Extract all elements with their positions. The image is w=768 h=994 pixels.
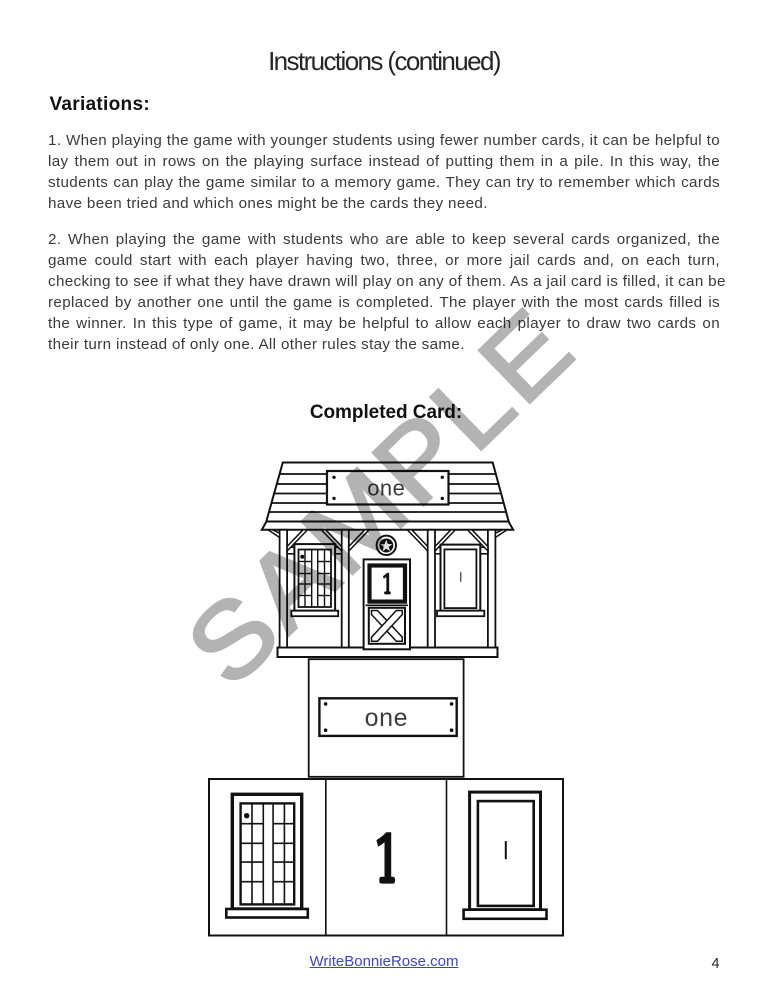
- svg-text:one: one: [367, 476, 405, 501]
- svg-text:one: one: [365, 704, 409, 732]
